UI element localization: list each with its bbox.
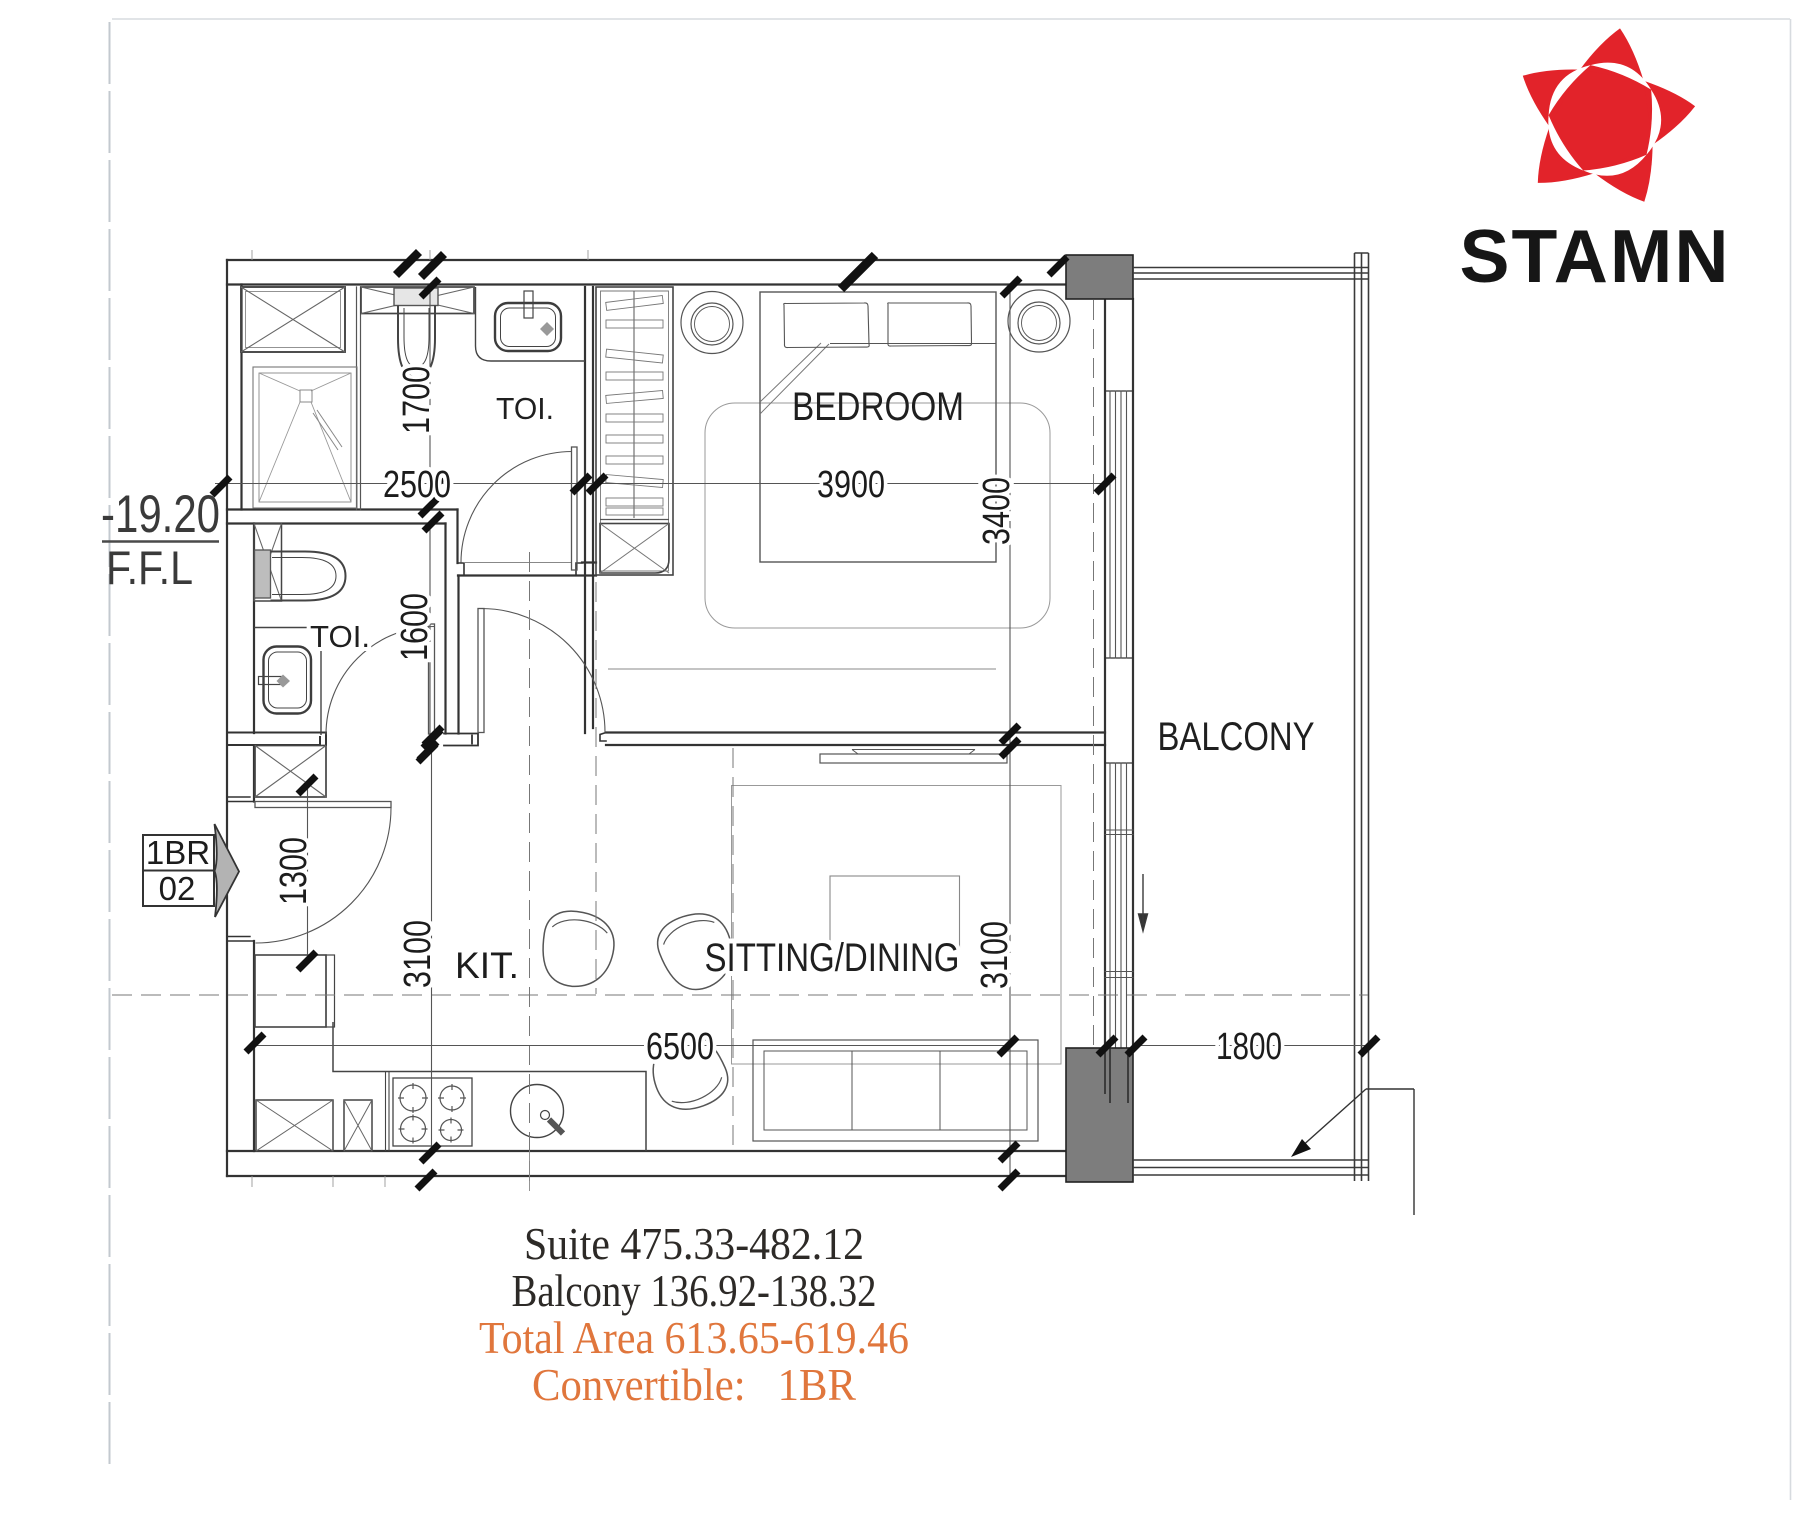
svg-text:6500: 6500 [646, 1026, 714, 1068]
svg-text:F.F.L: F.F.L [106, 541, 193, 594]
svg-text:02: 02 [159, 870, 196, 907]
svg-text:Balcony 136.92-138.32: Balcony 136.92-138.32 [512, 1265, 877, 1316]
svg-text:2500: 2500 [383, 464, 451, 506]
svg-text:1700: 1700 [396, 366, 438, 434]
svg-text:1BR: 1BR [146, 834, 210, 871]
svg-text:3100: 3100 [974, 921, 1016, 989]
svg-text:3100: 3100 [397, 920, 439, 988]
svg-text:1600: 1600 [394, 593, 436, 661]
svg-text:Suite 475.33-482.12: Suite 475.33-482.12 [524, 1218, 864, 1269]
svg-text:3400: 3400 [976, 477, 1018, 545]
svg-text:1800: 1800 [1216, 1026, 1282, 1068]
svg-text:1300: 1300 [273, 837, 315, 905]
svg-text:TOI.: TOI. [310, 619, 370, 654]
svg-text:3900: 3900 [817, 464, 885, 506]
svg-text:STAMN: STAMN [1459, 214, 1730, 298]
svg-text:BALCONY: BALCONY [1158, 715, 1315, 759]
svg-text:KIT.: KIT. [455, 945, 519, 986]
svg-text:BEDROOM: BEDROOM [792, 385, 964, 429]
svg-text:-19.20: -19.20 [101, 485, 220, 544]
svg-text:Convertible: 1BR: Convertible: 1BR [532, 1359, 856, 1410]
svg-text:SITTING/DINING: SITTING/DINING [705, 936, 960, 980]
svg-text:TOI.: TOI. [496, 391, 554, 426]
svg-text:Total Area 613.65-619.46: Total Area 613.65-619.46 [479, 1312, 909, 1363]
